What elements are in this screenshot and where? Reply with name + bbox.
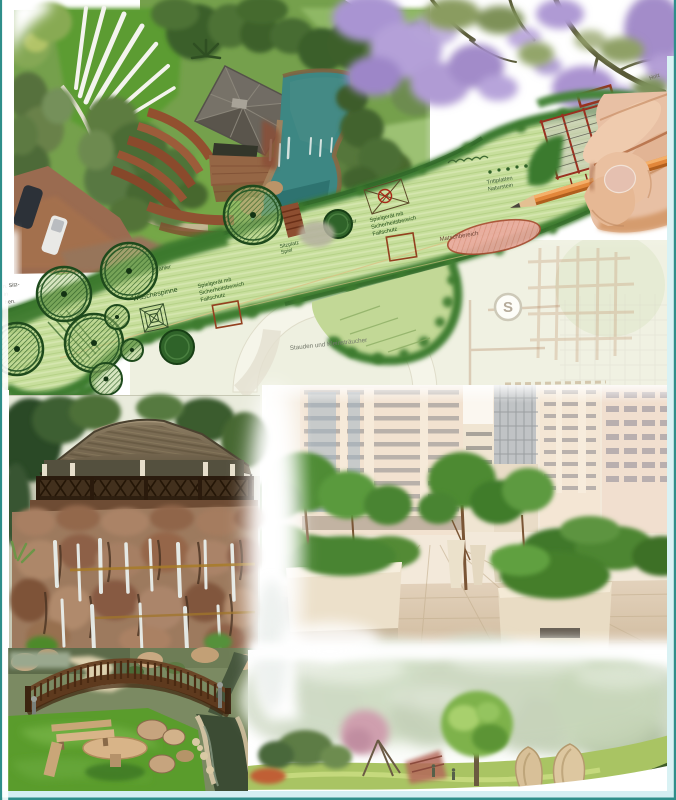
svg-text:S: S [503, 299, 513, 316]
